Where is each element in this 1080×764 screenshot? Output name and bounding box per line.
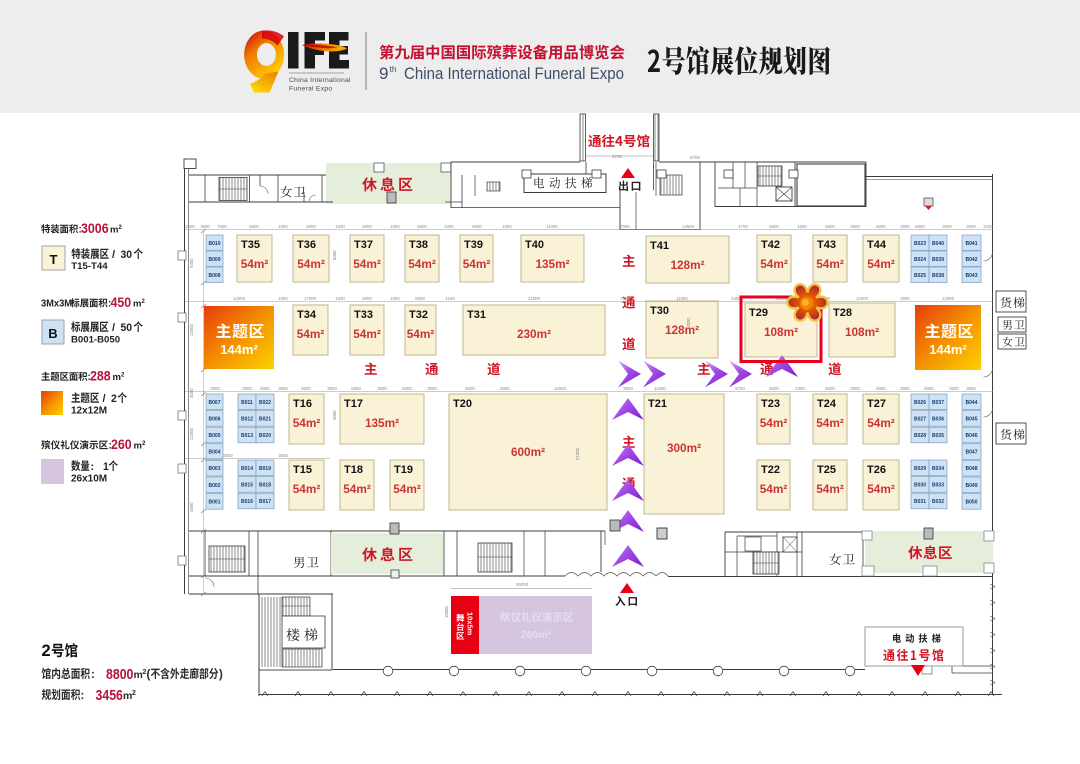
- svg-text:6000: 6000: [260, 386, 270, 391]
- svg-text:B038: B038: [932, 273, 944, 279]
- svg-text:T34: T34: [297, 309, 317, 321]
- svg-text:3000: 3000: [966, 224, 976, 229]
- svg-text:6000: 6000: [769, 224, 779, 229]
- svg-text:1000: 1000: [278, 224, 288, 229]
- svg-text:B001: B001: [209, 499, 221, 505]
- svg-text:1000: 1000: [278, 296, 288, 301]
- svg-text:B031: B031: [914, 499, 926, 505]
- svg-text:B036: B036: [932, 416, 944, 422]
- svg-text:9300: 9300: [189, 258, 194, 268]
- svg-text:B004: B004: [209, 450, 221, 456]
- svg-text:B005: B005: [209, 433, 221, 439]
- svg-text:B022: B022: [259, 400, 271, 406]
- svg-text::: :: [91, 669, 95, 681]
- svg-text:128m²: 128m²: [670, 258, 704, 272]
- svg-text:54m²: 54m²: [297, 327, 325, 341]
- svg-text:/: /: [103, 393, 106, 405]
- svg-text:2: 2: [42, 642, 51, 660]
- svg-text:6000: 6000: [876, 386, 886, 391]
- svg-text:12x12M: 12x12M: [71, 406, 107, 417]
- svg-text:54m²: 54m²: [241, 257, 269, 271]
- svg-text:B034: B034: [932, 466, 944, 472]
- svg-text:50: 50: [121, 322, 133, 334]
- svg-text:5700: 5700: [735, 386, 745, 391]
- svg-text:230m²: 230m²: [517, 327, 551, 341]
- svg-text:B015: B015: [241, 482, 253, 488]
- svg-text:2500: 2500: [185, 224, 195, 229]
- svg-text:10000: 10000: [444, 605, 449, 618]
- svg-text:54m²: 54m²: [408, 257, 436, 271]
- svg-text:54m²: 54m²: [293, 416, 321, 430]
- svg-text:B006: B006: [209, 416, 221, 422]
- svg-text:T15-T44: T15-T44: [71, 261, 108, 272]
- svg-text:6000: 6000: [351, 386, 361, 391]
- svg-text:3000: 3000: [278, 453, 288, 458]
- svg-text:T26: T26: [867, 464, 886, 476]
- svg-text:54m²: 54m²: [293, 482, 321, 496]
- svg-text:288: 288: [90, 368, 111, 384]
- svg-text:T43: T43: [817, 239, 836, 251]
- svg-text:2: 2: [111, 393, 117, 405]
- svg-text:3000: 3000: [242, 386, 252, 391]
- svg-text:6000: 6000: [876, 224, 886, 229]
- svg-text:B009: B009: [209, 257, 221, 263]
- svg-text:T15: T15: [293, 464, 312, 476]
- svg-text:1000: 1000: [390, 296, 400, 301]
- svg-text:4100: 4100: [445, 296, 455, 301]
- svg-text:54m²: 54m²: [816, 257, 844, 271]
- svg-text:54m²: 54m²: [297, 257, 325, 271]
- svg-text:1000: 1000: [795, 386, 805, 391]
- svg-text:B025: B025: [914, 273, 926, 279]
- svg-text:11000: 11000: [654, 386, 666, 391]
- svg-text:B028: B028: [914, 433, 926, 439]
- svg-text:54m²: 54m²: [867, 416, 895, 430]
- svg-text:54m²: 54m²: [353, 257, 381, 271]
- svg-text:T44: T44: [867, 239, 887, 251]
- svg-text:6000: 6000: [465, 386, 475, 391]
- svg-text:54m²: 54m²: [407, 327, 435, 341]
- svg-text:4800: 4800: [189, 502, 194, 512]
- svg-text:T25: T25: [817, 464, 836, 476]
- svg-text:B017: B017: [259, 499, 271, 505]
- svg-text:12000: 12000: [856, 296, 869, 301]
- svg-text:China International Funeral Ex: China International Funeral Expo: [404, 65, 624, 83]
- svg-text:54m²: 54m²: [816, 416, 844, 430]
- svg-text:3000: 3000: [223, 453, 233, 458]
- svg-text:6000: 6000: [769, 386, 779, 391]
- svg-text:B014: B014: [241, 466, 253, 472]
- svg-text:B023: B023: [914, 241, 926, 247]
- svg-text:B010: B010: [209, 241, 221, 247]
- svg-text:/: /: [112, 249, 115, 261]
- svg-text:B037: B037: [932, 400, 944, 406]
- svg-text:300m²: 300m²: [667, 441, 701, 455]
- svg-text:T19: T19: [394, 464, 413, 476]
- svg-text:7000: 7000: [620, 224, 630, 229]
- svg-text:T37: T37: [354, 239, 373, 251]
- svg-text:3000: 3000: [377, 386, 387, 391]
- svg-text:144m²: 144m²: [929, 342, 967, 357]
- svg-text:B001-B050: B001-B050: [71, 335, 120, 346]
- svg-text:B030: B030: [914, 482, 926, 488]
- svg-text:54m²: 54m²: [760, 482, 788, 496]
- svg-text:15000: 15000: [554, 386, 567, 391]
- svg-text:54m²: 54m²: [353, 327, 381, 341]
- svg-text:T41: T41: [650, 240, 669, 252]
- svg-text:1700: 1700: [738, 224, 748, 229]
- svg-text:T22: T22: [761, 464, 780, 476]
- svg-text:21000: 21000: [528, 296, 541, 301]
- svg-text:54m²: 54m²: [463, 257, 491, 271]
- svg-text:6000: 6000: [825, 386, 835, 391]
- svg-text:T: T: [50, 252, 58, 267]
- svg-text:B016: B016: [241, 499, 253, 505]
- svg-text:T36: T36: [297, 239, 316, 251]
- svg-text:1000: 1000: [335, 296, 345, 301]
- svg-text:10x5m: 10x5m: [466, 612, 475, 636]
- svg-text:T32: T32: [409, 309, 428, 321]
- svg-text:108m²: 108m²: [845, 325, 879, 339]
- svg-text:B032: B032: [932, 499, 944, 505]
- svg-text:11000: 11000: [546, 224, 558, 229]
- svg-text:T33: T33: [354, 309, 373, 321]
- svg-text:1000: 1000: [797, 224, 807, 229]
- svg-text::: :: [91, 461, 95, 473]
- svg-text:B041: B041: [966, 241, 978, 247]
- svg-text:6000: 6000: [301, 386, 311, 391]
- svg-text:T31: T31: [467, 309, 486, 321]
- svg-text:12000: 12000: [189, 323, 194, 336]
- svg-text:1000: 1000: [444, 224, 454, 229]
- svg-text:(: (: [147, 669, 151, 681]
- svg-text:6000: 6000: [362, 224, 372, 229]
- svg-text:8800: 8800: [106, 666, 133, 682]
- svg-text:B012: B012: [241, 416, 253, 422]
- svg-text:7000: 7000: [217, 224, 227, 229]
- svg-text:B024: B024: [914, 257, 926, 263]
- svg-text:135m²: 135m²: [535, 257, 569, 271]
- svg-text:260m²: 260m²: [521, 629, 552, 641]
- svg-text:B007: B007: [209, 400, 221, 406]
- svg-text:B044: B044: [966, 400, 978, 406]
- svg-text:T27: T27: [867, 398, 886, 410]
- svg-text:3000: 3000: [278, 386, 288, 391]
- svg-text:B040: B040: [932, 241, 944, 247]
- svg-text:6000: 6000: [417, 224, 427, 229]
- svg-text:): ): [219, 669, 223, 681]
- svg-text:1000: 1000: [502, 224, 512, 229]
- svg-text:m: m: [134, 441, 142, 452]
- svg-text:T29: T29: [749, 307, 768, 319]
- svg-text:B013: B013: [241, 433, 253, 439]
- svg-text:m: m: [134, 669, 143, 681]
- svg-text:12000: 12000: [686, 317, 691, 330]
- svg-text:6000: 6000: [924, 386, 934, 391]
- svg-text:T24: T24: [817, 398, 837, 410]
- svg-text:12000: 12000: [942, 296, 955, 301]
- svg-text:144m²: 144m²: [220, 342, 258, 357]
- svg-text:B003: B003: [209, 466, 221, 472]
- svg-text:T21: T21: [648, 398, 667, 410]
- svg-text:54m²: 54m²: [760, 416, 788, 430]
- svg-text:3006: 3006: [81, 221, 109, 237]
- svg-text:12000: 12000: [233, 296, 246, 301]
- svg-text:21000: 21000: [189, 427, 194, 440]
- svg-text:9: 9: [379, 64, 388, 83]
- svg-text:3Mx3M: 3Mx3M: [41, 298, 72, 309]
- svg-text:6000: 6000: [249, 224, 259, 229]
- svg-text:6000: 6000: [362, 296, 372, 301]
- svg-text:/: /: [112, 322, 115, 334]
- svg-text:B026: B026: [914, 400, 926, 406]
- svg-text:B029: B029: [914, 466, 926, 472]
- svg-text:3000: 3000: [210, 386, 220, 391]
- svg-text:m: m: [110, 225, 118, 236]
- svg-text:6000: 6000: [825, 224, 835, 229]
- svg-text:T40: T40: [525, 239, 544, 251]
- svg-text:30: 30: [121, 249, 133, 261]
- svg-text:8700: 8700: [690, 155, 701, 160]
- svg-text:1000: 1000: [335, 224, 345, 229]
- svg-text:B: B: [48, 326, 57, 341]
- svg-text:8300: 8300: [332, 250, 337, 260]
- svg-text:B020: B020: [259, 433, 271, 439]
- svg-text:5000: 5000: [332, 410, 337, 420]
- svg-text:B046: B046: [966, 433, 978, 439]
- svg-text:B019: B019: [259, 466, 271, 472]
- svg-text:6000: 6000: [306, 224, 316, 229]
- svg-text:6000: 6000: [472, 224, 482, 229]
- svg-text:2100: 2100: [983, 224, 993, 229]
- svg-text:B035: B035: [932, 433, 944, 439]
- svg-text:3000: 3000: [900, 386, 910, 391]
- svg-text:T28: T28: [833, 307, 852, 319]
- svg-text:3000: 3000: [966, 386, 976, 391]
- svg-text:600m²: 600m²: [511, 445, 545, 459]
- svg-text:B002: B002: [209, 483, 221, 489]
- svg-text:T35: T35: [241, 239, 260, 251]
- svg-text:128m²: 128m²: [665, 323, 699, 337]
- svg-text:54m²: 54m²: [393, 482, 421, 496]
- svg-text:T23: T23: [761, 398, 780, 410]
- svg-text:B043: B043: [966, 273, 978, 279]
- svg-text:6000: 6000: [915, 224, 925, 229]
- svg-text:21000: 21000: [575, 447, 580, 460]
- svg-text:B018: B018: [259, 482, 271, 488]
- svg-text:5000: 5000: [500, 386, 510, 391]
- svg-text:B047: B047: [966, 450, 978, 456]
- svg-text:T39: T39: [464, 239, 483, 251]
- svg-text:th: th: [390, 64, 397, 74]
- svg-text:T18: T18: [344, 464, 363, 476]
- svg-text:Funeral Expo: Funeral Expo: [289, 86, 332, 93]
- svg-text:B045: B045: [966, 416, 978, 422]
- svg-text:6000: 6000: [415, 296, 425, 301]
- svg-text:54m²: 54m²: [867, 482, 895, 496]
- svg-text:m: m: [123, 690, 132, 702]
- svg-text:54m²: 54m²: [867, 257, 895, 271]
- svg-text:1: 1: [103, 461, 109, 473]
- svg-text:B033: B033: [932, 482, 944, 488]
- svg-text:7000: 7000: [620, 296, 630, 301]
- svg-text:260: 260: [111, 437, 132, 453]
- svg-text:11000: 11000: [676, 296, 688, 301]
- svg-text:B049: B049: [966, 483, 978, 489]
- svg-text:3600: 3600: [200, 224, 210, 229]
- svg-text:China International: China International: [289, 77, 351, 84]
- svg-text:14500: 14500: [682, 224, 695, 229]
- svg-text:3000: 3000: [623, 386, 633, 391]
- svg-text:B042: B042: [966, 257, 978, 263]
- svg-text:m: m: [113, 372, 121, 383]
- svg-text:T38: T38: [409, 239, 428, 251]
- svg-text:26000: 26000: [516, 582, 529, 587]
- svg-text:2500: 2500: [850, 224, 860, 229]
- svg-text:450: 450: [111, 295, 132, 311]
- svg-text:3000: 3000: [900, 296, 910, 301]
- svg-text:4000: 4000: [189, 388, 194, 398]
- svg-text:3000: 3000: [427, 386, 437, 391]
- svg-text:B039: B039: [932, 257, 944, 263]
- svg-text:B021: B021: [259, 416, 271, 422]
- svg-text::: :: [81, 690, 85, 702]
- svg-text:17000: 17000: [304, 296, 317, 301]
- svg-text:135m²: 135m²: [365, 416, 399, 430]
- svg-text:T16: T16: [293, 398, 312, 410]
- svg-text:3000: 3000: [949, 386, 959, 391]
- svg-text:m: m: [133, 299, 141, 310]
- svg-text:3456: 3456: [96, 687, 123, 703]
- svg-text:54m²: 54m²: [760, 257, 788, 271]
- svg-text:T17: T17: [344, 398, 363, 410]
- svg-text:T42: T42: [761, 239, 780, 251]
- svg-text:2: 2: [132, 690, 136, 697]
- svg-text:6000: 6000: [402, 386, 412, 391]
- svg-text:3000: 3000: [327, 386, 337, 391]
- svg-text:B027: B027: [914, 416, 926, 422]
- svg-text:B050: B050: [966, 499, 978, 505]
- svg-text:B048: B048: [966, 466, 978, 472]
- svg-text:B008: B008: [209, 273, 221, 279]
- svg-text:108m²: 108m²: [764, 325, 798, 339]
- svg-text:T20: T20: [453, 398, 472, 410]
- svg-text:3000: 3000: [900, 224, 910, 229]
- svg-text:T30: T30: [650, 305, 669, 317]
- svg-text:3000: 3000: [942, 224, 952, 229]
- svg-text:1000: 1000: [390, 224, 400, 229]
- svg-text:26x10M: 26x10M: [71, 474, 107, 485]
- svg-text:54m²: 54m²: [343, 482, 371, 496]
- svg-text:3000: 3000: [850, 386, 860, 391]
- svg-text:B011: B011: [241, 400, 253, 406]
- svg-text:2700: 2700: [612, 154, 623, 159]
- svg-text:54m²: 54m²: [816, 482, 844, 496]
